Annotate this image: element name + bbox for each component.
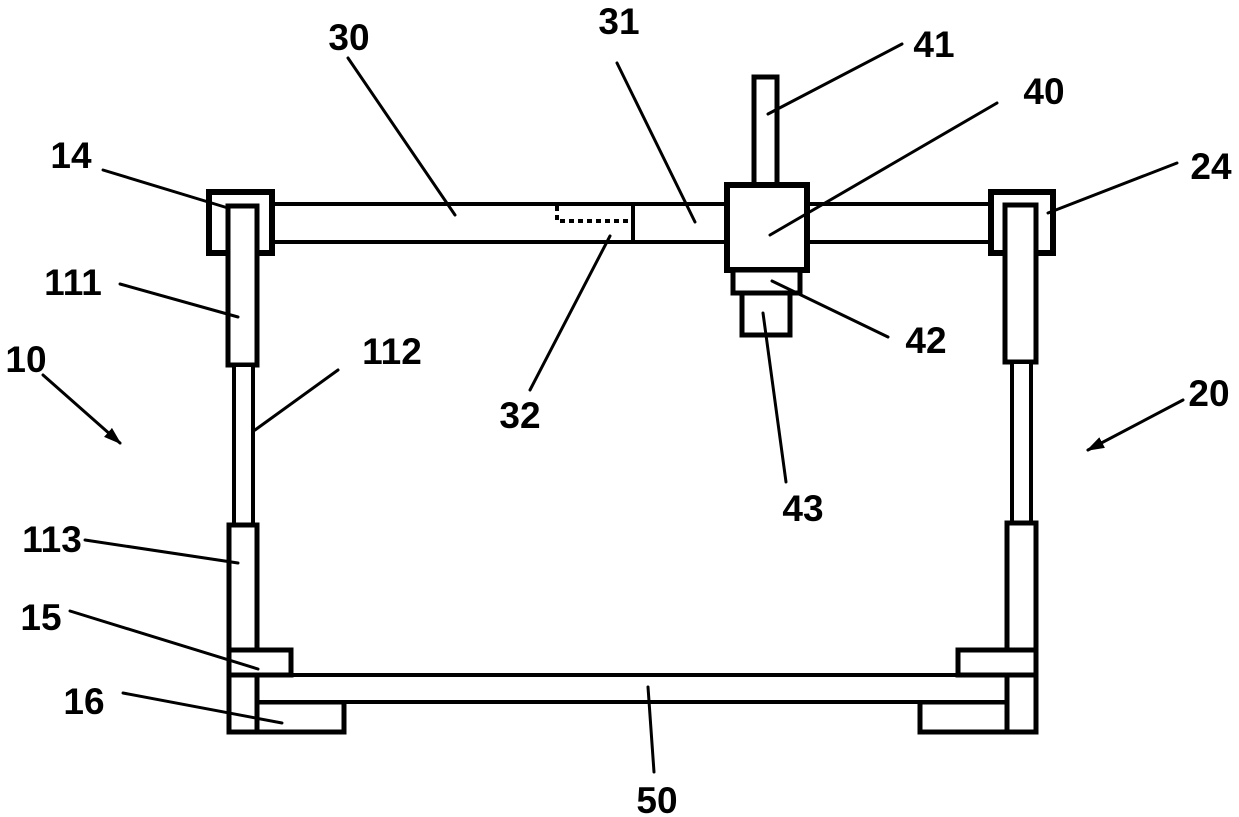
- label-112: 112: [362, 331, 422, 372]
- label-50: 50: [636, 780, 677, 817]
- right-middle-rod: [1012, 362, 1031, 523]
- label-113: 113: [22, 519, 82, 560]
- left-lower-column-113: [229, 525, 257, 732]
- left-middle-rod-112: [234, 365, 253, 525]
- right-stop-block: [958, 650, 1036, 675]
- figure-canvas: 30 31 41 40 24 14 111 10 112 32 42 20 43…: [0, 0, 1239, 817]
- label-10: 10: [5, 339, 46, 380]
- leader-113: [85, 540, 238, 563]
- label-32: 32: [499, 395, 540, 436]
- label-42: 42: [905, 320, 946, 361]
- left-upper-column-111: [228, 206, 257, 365]
- label-20: 20: [1188, 373, 1229, 414]
- bottom-beam-50: [257, 675, 1007, 702]
- label-40: 40: [1023, 71, 1064, 112]
- label-43: 43: [782, 488, 823, 529]
- label-30: 30: [328, 17, 369, 58]
- leader-112: [255, 370, 338, 430]
- right-upper-column: [1005, 205, 1036, 362]
- label-16: 16: [63, 681, 104, 722]
- carriage-block-40: [727, 185, 807, 270]
- label-31: 31: [598, 1, 639, 42]
- leader-arrow-10: [43, 375, 120, 443]
- label-14: 14: [50, 135, 92, 176]
- right-lower-column: [1007, 523, 1036, 732]
- leader-43: [763, 313, 786, 482]
- top-beam-30: [213, 204, 992, 242]
- patent-figure-svg: 30 31 41 40 24 14 111 10 112 32 42 20 43…: [0, 0, 1239, 817]
- label-15: 15: [20, 597, 61, 638]
- leader-31: [617, 63, 695, 222]
- leader-41: [768, 44, 902, 114]
- label-41: 41: [913, 24, 954, 65]
- leader-30: [348, 58, 455, 215]
- label-24: 24: [1190, 146, 1232, 187]
- leader-111: [120, 284, 238, 317]
- leader-24: [1048, 163, 1177, 213]
- leader-arrow-20: [1088, 400, 1183, 450]
- leader-32: [530, 236, 610, 390]
- vertical-rod-41: [754, 77, 777, 187]
- label-111: 111: [44, 262, 102, 303]
